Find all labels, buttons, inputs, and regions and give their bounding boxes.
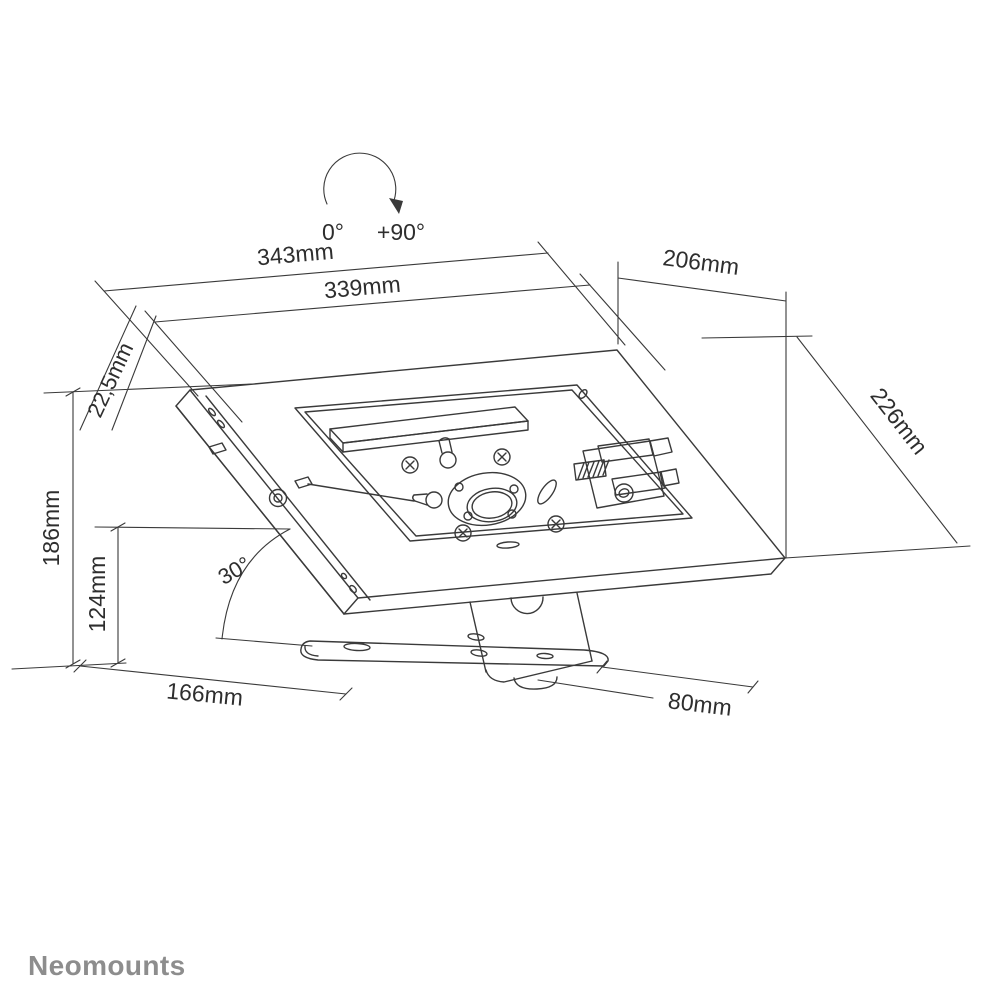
neomounts-logo: Neomounts [28,950,186,982]
inner-width-label: 339mm [323,271,402,304]
enclosure-side-strip [176,390,358,614]
desk-baseline [12,663,126,669]
rotation-end-label: +90° [377,219,425,245]
dim-top-depth [618,262,786,558]
rotation-arc [324,153,403,214]
dim-tilt-angle [216,529,312,646]
pivot-height-label: 124mm [84,556,110,633]
thickness-label: 22,5mm [82,339,138,422]
dim-outer-width [95,242,625,396]
dim-surface-depth [702,336,970,558]
dim-pivot-height [95,523,290,667]
technical-drawing-page: 0° +90° 343mm 339mm 206mm 22,5mm 226mm 1… [0,0,1004,1004]
top-depth-label: 206mm [661,244,740,280]
base-width-label: 80mm [667,687,734,721]
clamp-mechanism [574,438,679,508]
total-height-label: 186mm [38,490,64,567]
base-plate [301,641,608,666]
outer-width-label: 343mm [256,238,335,271]
tilt-angle-label: 30° [214,551,255,589]
stand-bracket [468,593,592,689]
dim-inner-width [145,274,665,422]
keyhole-slots [413,388,589,549]
pivot-boss [444,467,529,531]
enclosure-bottom-strip [344,558,785,614]
surface-depth-label: 226mm [865,383,933,459]
handle-slot [330,407,528,452]
dimension-lines [12,242,970,700]
enclosure-back-face [190,350,785,598]
tablet-enclosure [176,350,785,614]
dimension-drawing: 0° +90° 343mm 339mm 206mm 22,5mm 226mm 1… [0,0,1004,1004]
arrowhead-icon [389,198,403,214]
